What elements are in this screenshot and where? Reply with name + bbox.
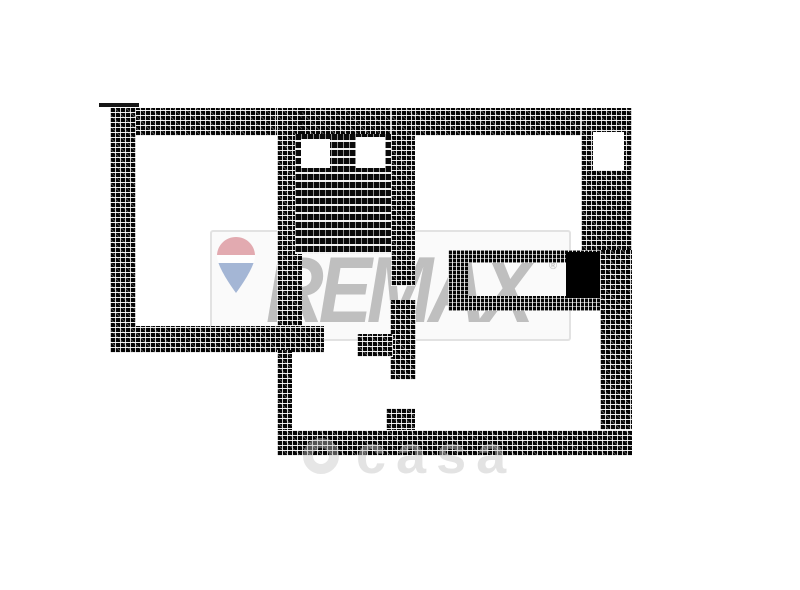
balcony-rail-bottom <box>448 296 600 311</box>
window-cutout-2 <box>356 137 385 168</box>
wall-lower-left <box>277 350 292 434</box>
remax-balloon-icon <box>217 237 255 293</box>
wall-right-lower <box>600 250 632 455</box>
wall-top <box>110 108 632 136</box>
wall-left-room-bottom <box>110 326 324 353</box>
wall-left <box>110 108 136 353</box>
floorplan-canvas: REMAX ® casa <box>0 0 800 590</box>
copyright-circle-icon <box>303 438 339 474</box>
wall-right-upper <box>581 108 632 256</box>
balcony-rail-end <box>448 250 468 311</box>
wall-partition-upper <box>390 300 416 380</box>
wall-top-line <box>99 103 139 107</box>
footer-watermark-text: casa <box>356 428 516 482</box>
wall-partition-stub <box>357 334 393 357</box>
wall-stair-right <box>391 108 415 286</box>
window-cutout-right <box>593 132 624 170</box>
wall-solid-block <box>566 252 600 298</box>
window-cutout-1 <box>301 139 330 168</box>
